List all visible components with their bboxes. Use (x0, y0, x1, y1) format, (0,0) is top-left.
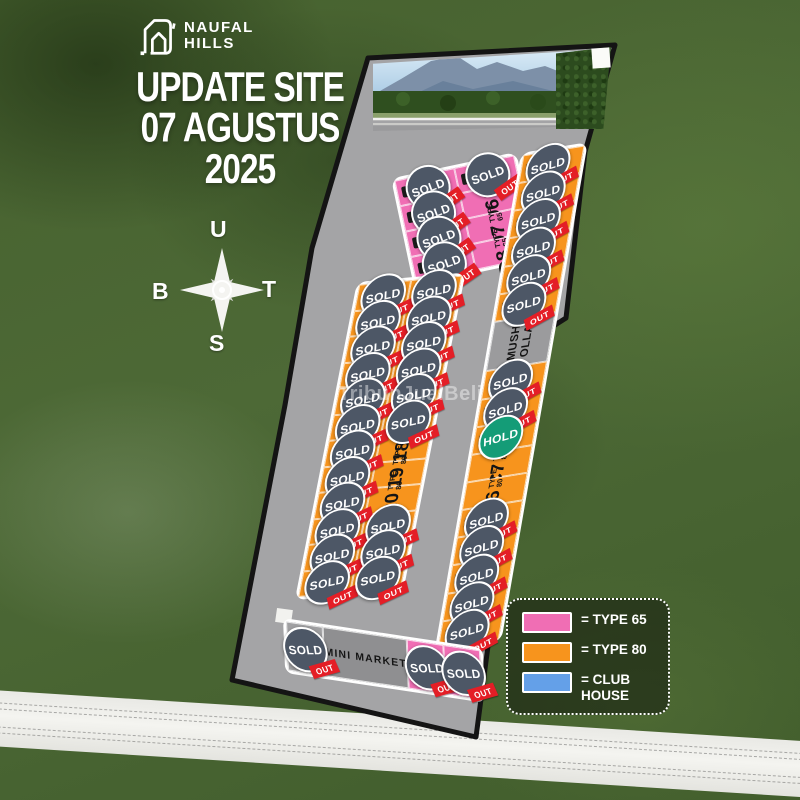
sold-badge: SOLD OUT (437, 650, 489, 696)
watermark: TribunJualBeli (338, 383, 483, 406)
legend-swatch (522, 642, 572, 663)
site-plan-image: SOLDOUTSOLDOUTSOLDOUTSOLDOUTSOLDOUTD6TYP… (0, 0, 800, 800)
unit-type: TYPE80 (487, 467, 507, 489)
legend-label: = CLUB HOUSE (581, 672, 656, 703)
unit-cell: SOLDOUT (350, 562, 406, 593)
title-line2: 07 AGUSTUS (105, 108, 375, 149)
unit-cell: SOLD OUT (286, 621, 324, 675)
logo-text: NAUFAL HILLS (184, 20, 254, 53)
unit-cell: SOLD OUT (407, 640, 445, 694)
naufal-hills-house-icon (136, 14, 176, 58)
unit-type: TYPE80 (387, 470, 407, 491)
legend-row: = TYPE 80 (522, 642, 656, 663)
legend-label: = TYPE 80 (581, 642, 647, 658)
compass-rose: U T S B (150, 220, 295, 365)
corner-marker (591, 47, 610, 68)
sold-badge: SOLD OUT (280, 626, 332, 672)
title-line3: 2025 (105, 149, 375, 190)
logo-line2: HILLS (184, 36, 254, 53)
compass-south-label: S (209, 330, 224, 357)
logo-line1: NAUFAL (184, 20, 254, 37)
unit-type: TYPE65 (485, 201, 505, 224)
unit-cell: SOLDOUT (454, 155, 519, 193)
logo: NAUFAL HILLS (136, 14, 254, 58)
compass-north-label: U (210, 216, 227, 243)
unit-cell: SOLDOUT (380, 406, 436, 437)
legend-row: = TYPE 65 (522, 612, 656, 633)
legend-swatch (522, 672, 572, 693)
unit-type: TYPE80 (392, 444, 412, 465)
legend: = TYPE 65= TYPE 80= CLUB HOUSE (506, 598, 670, 715)
legend-swatch (522, 612, 572, 633)
compass-west-label: B (152, 278, 169, 305)
unit-cell: SOLD OUT (443, 645, 481, 699)
mini-market-cell: MINI MARKET (323, 627, 409, 689)
legend-row: = CLUB HOUSE (522, 672, 656, 703)
unit-cell: SOLDOUT (298, 566, 354, 597)
legend-label: = TYPE 65 (581, 612, 647, 628)
title-line1: UPDATE SITE (105, 67, 375, 108)
page-title: UPDATE SITE 07 AGUSTUS 2025 (105, 67, 375, 189)
sold-badge: SOLDOUT (354, 551, 402, 604)
compass-east-label: T (262, 276, 276, 303)
